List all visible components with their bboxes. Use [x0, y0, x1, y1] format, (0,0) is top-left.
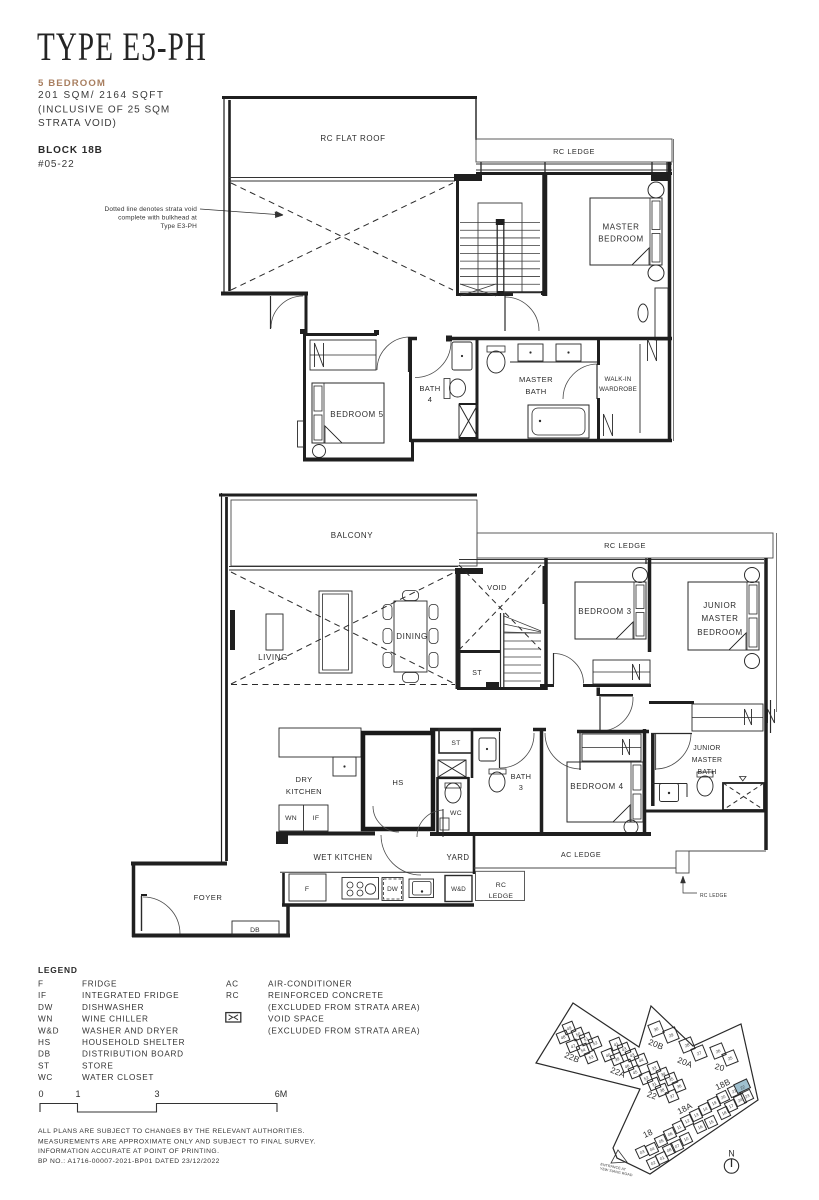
svg-text:BATH: BATH	[525, 387, 546, 396]
svg-text:DISTRIBUTION BOARD: DISTRIBUTION BOARD	[82, 1050, 184, 1059]
svg-text:BEDROOM: BEDROOM	[598, 235, 644, 244]
svg-text:DISHWASHER: DISHWASHER	[82, 1003, 144, 1012]
svg-text:AC LEDGE: AC LEDGE	[561, 850, 601, 859]
svg-text:WET KITCHEN: WET KITCHEN	[313, 853, 372, 862]
svg-text:AIR-CONDITIONER: AIR-CONDITIONER	[268, 980, 352, 989]
svg-text:MASTER: MASTER	[702, 614, 739, 623]
svg-text:3: 3	[519, 783, 524, 792]
svg-text:BALCONY: BALCONY	[331, 531, 373, 540]
svg-text:WINE CHILLER: WINE CHILLER	[82, 1015, 149, 1024]
svg-text:REINFORCED CONCRETE: REINFORCED CONCRETE	[268, 991, 384, 1000]
svg-text:BP NO.: A1716-00007-2021-BP01: BP NO.: A1716-00007-2021-BP01 DATED 23/1…	[38, 1158, 220, 1165]
svg-text:1: 1	[75, 1089, 80, 1099]
svg-text:WARDROBE: WARDROBE	[599, 386, 637, 393]
svg-text:ALL PLANS ARE SUBJECT TO CHANG: ALL PLANS ARE SUBJECT TO CHANGES BY THE …	[38, 1128, 305, 1135]
svg-text:TYPE E3-PH: TYPE E3-PH	[37, 24, 207, 69]
svg-text:0: 0	[38, 1089, 43, 1099]
svg-text:DB: DB	[250, 927, 260, 934]
svg-text:INTEGRATED FRIDGE: INTEGRATED FRIDGE	[82, 991, 179, 1000]
svg-text:KITCHEN: KITCHEN	[286, 787, 322, 796]
svg-text:DW: DW	[38, 1003, 53, 1012]
svg-text:RC: RC	[496, 882, 506, 889]
svg-text:AC: AC	[226, 980, 239, 989]
svg-text:RC LEDGE: RC LEDGE	[700, 893, 728, 899]
svg-text:(EXCLUDED FROM STRATA AREA): (EXCLUDED FROM STRATA AREA)	[268, 1026, 420, 1035]
svg-text:LEGEND: LEGEND	[38, 965, 78, 975]
svg-text:BEDROOM 5: BEDROOM 5	[330, 410, 383, 419]
svg-text:JUNIOR: JUNIOR	[703, 601, 736, 610]
svg-text:#05-22: #05-22	[38, 159, 75, 170]
svg-text:201 SQM/ 2164 SQFT: 201 SQM/ 2164 SQFT	[38, 90, 165, 101]
svg-text:DRY: DRY	[295, 775, 312, 784]
svg-text:4: 4	[428, 395, 433, 404]
svg-text:RC FLAT ROOF: RC FLAT ROOF	[320, 134, 385, 143]
svg-text:ST: ST	[451, 740, 460, 747]
svg-text:DW: DW	[387, 886, 399, 893]
svg-text:WC: WC	[38, 1073, 53, 1082]
svg-text:LIVING: LIVING	[258, 653, 288, 662]
svg-text:Dotted line denotes strata voi: Dotted line denotes strata void	[105, 206, 198, 213]
svg-text:complete with bulkhead at: complete with bulkhead at	[118, 215, 197, 222]
svg-text:MASTER: MASTER	[519, 375, 553, 384]
svg-text:ST: ST	[472, 670, 482, 677]
svg-text:W&D: W&D	[451, 886, 466, 893]
svg-text:5 BEDROOM: 5 BEDROOM	[38, 78, 106, 89]
svg-text:STORE: STORE	[82, 1061, 114, 1070]
svg-text:BATH: BATH	[419, 384, 440, 393]
svg-text:MEASUREMENTS ARE APPROXIMATE O: MEASUREMENTS ARE APPROXIMATE ONLY AND SU…	[38, 1139, 316, 1146]
svg-text:YARD: YARD	[446, 853, 469, 862]
svg-text:HOUSEHOLD SHELTER: HOUSEHOLD SHELTER	[82, 1038, 185, 1047]
svg-text:6M: 6M	[275, 1089, 288, 1099]
svg-text:ST: ST	[38, 1061, 50, 1070]
svg-text:BATH: BATH	[511, 772, 532, 781]
svg-text:HS: HS	[392, 778, 403, 787]
svg-text:RC LEDGE: RC LEDGE	[604, 541, 646, 550]
svg-text:BEDROOM: BEDROOM	[697, 628, 743, 637]
svg-text:JUNIOR: JUNIOR	[693, 745, 720, 752]
svg-text:HS: HS	[38, 1038, 51, 1047]
svg-text:WATER CLOSET: WATER CLOSET	[82, 1073, 154, 1082]
svg-text:(INCLUSIVE OF 25 SQM: (INCLUSIVE OF 25 SQM	[38, 105, 170, 116]
svg-text:BATH: BATH	[697, 769, 716, 776]
svg-text:Type E3-PH: Type E3-PH	[160, 223, 197, 230]
svg-text:WALK-IN: WALK-IN	[605, 376, 632, 383]
svg-text:DB: DB	[38, 1050, 51, 1059]
svg-text:FRIDGE: FRIDGE	[82, 980, 117, 989]
svg-text:INFORMATION ACCURATE AT POINT: INFORMATION ACCURATE AT POINT OF PRINTIN…	[38, 1148, 219, 1155]
svg-text:BLOCK 18B: BLOCK 18B	[38, 145, 103, 156]
svg-text:FOYER: FOYER	[194, 893, 223, 902]
svg-text:VOID SPACE: VOID SPACE	[268, 1015, 324, 1024]
svg-text:3: 3	[154, 1089, 159, 1099]
svg-text:F: F	[305, 886, 309, 893]
svg-text:DINING: DINING	[396, 632, 428, 641]
svg-text:(EXCLUDED FROM STRATA AREA): (EXCLUDED FROM STRATA AREA)	[268, 1003, 420, 1012]
svg-text:F: F	[38, 980, 44, 989]
svg-text:IF: IF	[313, 815, 319, 822]
svg-text:MASTER: MASTER	[603, 223, 640, 232]
svg-text:BEDROOM 3: BEDROOM 3	[578, 607, 631, 616]
svg-text:WC: WC	[450, 810, 462, 817]
svg-text:MASTER: MASTER	[692, 757, 723, 764]
svg-text:N: N	[728, 1149, 734, 1159]
svg-text:LEDGE: LEDGE	[489, 893, 514, 900]
svg-text:RC: RC	[226, 991, 239, 1000]
svg-text:VOID: VOID	[487, 583, 507, 592]
svg-text:IF: IF	[38, 991, 47, 1000]
svg-text:W&D: W&D	[38, 1026, 59, 1035]
svg-text:BEDROOM 4: BEDROOM 4	[570, 782, 623, 791]
svg-text:WN: WN	[38, 1015, 53, 1024]
svg-text:WASHER AND DRYER: WASHER AND DRYER	[82, 1026, 179, 1035]
svg-text:STRATA VOID): STRATA VOID)	[38, 118, 117, 129]
svg-text:RC LEDGE: RC LEDGE	[553, 147, 595, 156]
svg-text:WN: WN	[285, 815, 297, 822]
